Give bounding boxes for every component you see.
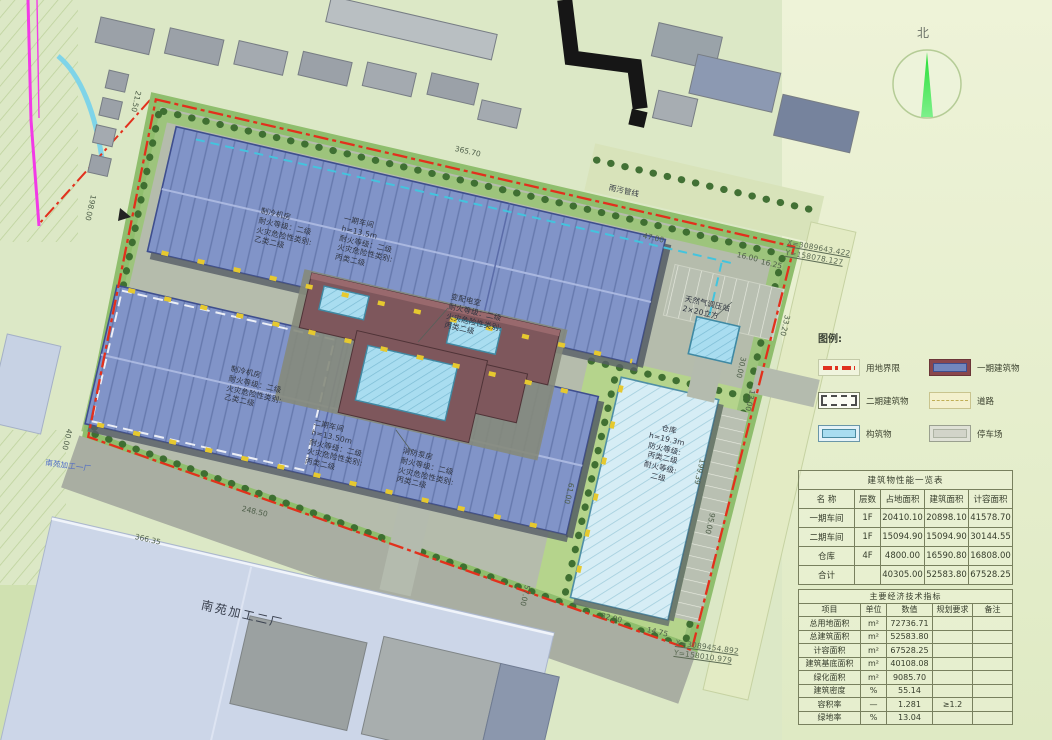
road-swatch-icon [929, 392, 971, 409]
site-plan-canvas: 北 制冷机房 耐火等级：二级 火灾危险性类别: 乙类二级 一期车间 h=13.5… [0, 0, 1052, 740]
phase2-swatch-icon [818, 392, 860, 409]
table-row: 建筑基底面积m² 40108.08 [799, 657, 1013, 671]
legend-item-road: 道路 [929, 392, 1036, 409]
phase1-swatch-icon [929, 359, 971, 376]
table-header-row: 名 称 层数 占地面积 建筑面积 计容面积 [799, 490, 1013, 509]
table-row: 一期车间1F 20410.1020898.10 41578.70 [799, 509, 1013, 528]
table-row: 容积率— 1.281≥1.2 [799, 698, 1013, 712]
parking-swatch-icon [929, 425, 971, 442]
buildings-table-title: 建筑物性能一览表 [799, 471, 1013, 490]
economic-table-title: 主要经济技术指标 [799, 590, 1013, 604]
table-row: 绿地率% 13.04 [799, 711, 1013, 725]
table-row: 建筑密度% 55.14 [799, 684, 1013, 698]
legend: 图例: 用地界限 一期建筑物 二期建筑物 道路 构筑物 [818, 330, 1036, 442]
economic-indicators-table: 主要经济技术指标 项目 单位 数值 规划要求 备注 总用地面积m² 72736.… [798, 589, 1013, 725]
table-row: 仓库4F 4800.0016590.80 16808.00 [799, 547, 1013, 566]
table-row: 二期车间1F 15094.9015094.90 30144.55 [799, 528, 1013, 547]
north-label: 北 [917, 24, 929, 41]
buildings-table: 建筑物性能一览表 名 称 层数 占地面积 建筑面积 计容面积 一期车间1F 20… [798, 470, 1013, 585]
compass: 北 [878, 16, 982, 128]
legend-title: 图例: [818, 330, 1036, 345]
north-arrow-icon [878, 16, 982, 128]
table-row: 总用地面积m² 72736.71 [799, 617, 1013, 631]
legend-item-boundary: 用地界限 [818, 359, 925, 376]
legend-item-parking: 停车场 [929, 425, 1036, 442]
table-header-row: 项目 单位 数值 规划要求 备注 [799, 603, 1013, 617]
table-row: 总建筑面积m² 52583.80 [799, 630, 1013, 644]
structure-swatch-icon [818, 425, 860, 442]
legend-item-phase1: 一期建筑物 [929, 359, 1036, 376]
boundary-swatch-icon [818, 359, 860, 376]
legend-item-structure: 构筑物 [818, 425, 925, 442]
table-row: 计容面积m² 67528.25 [799, 644, 1013, 658]
table-row: 绿化面积m² 9085.70 [799, 671, 1013, 685]
table-row: 合计 40305.0052583.80 67528.25 [799, 566, 1013, 585]
legend-item-phase2: 二期建筑物 [818, 392, 925, 409]
